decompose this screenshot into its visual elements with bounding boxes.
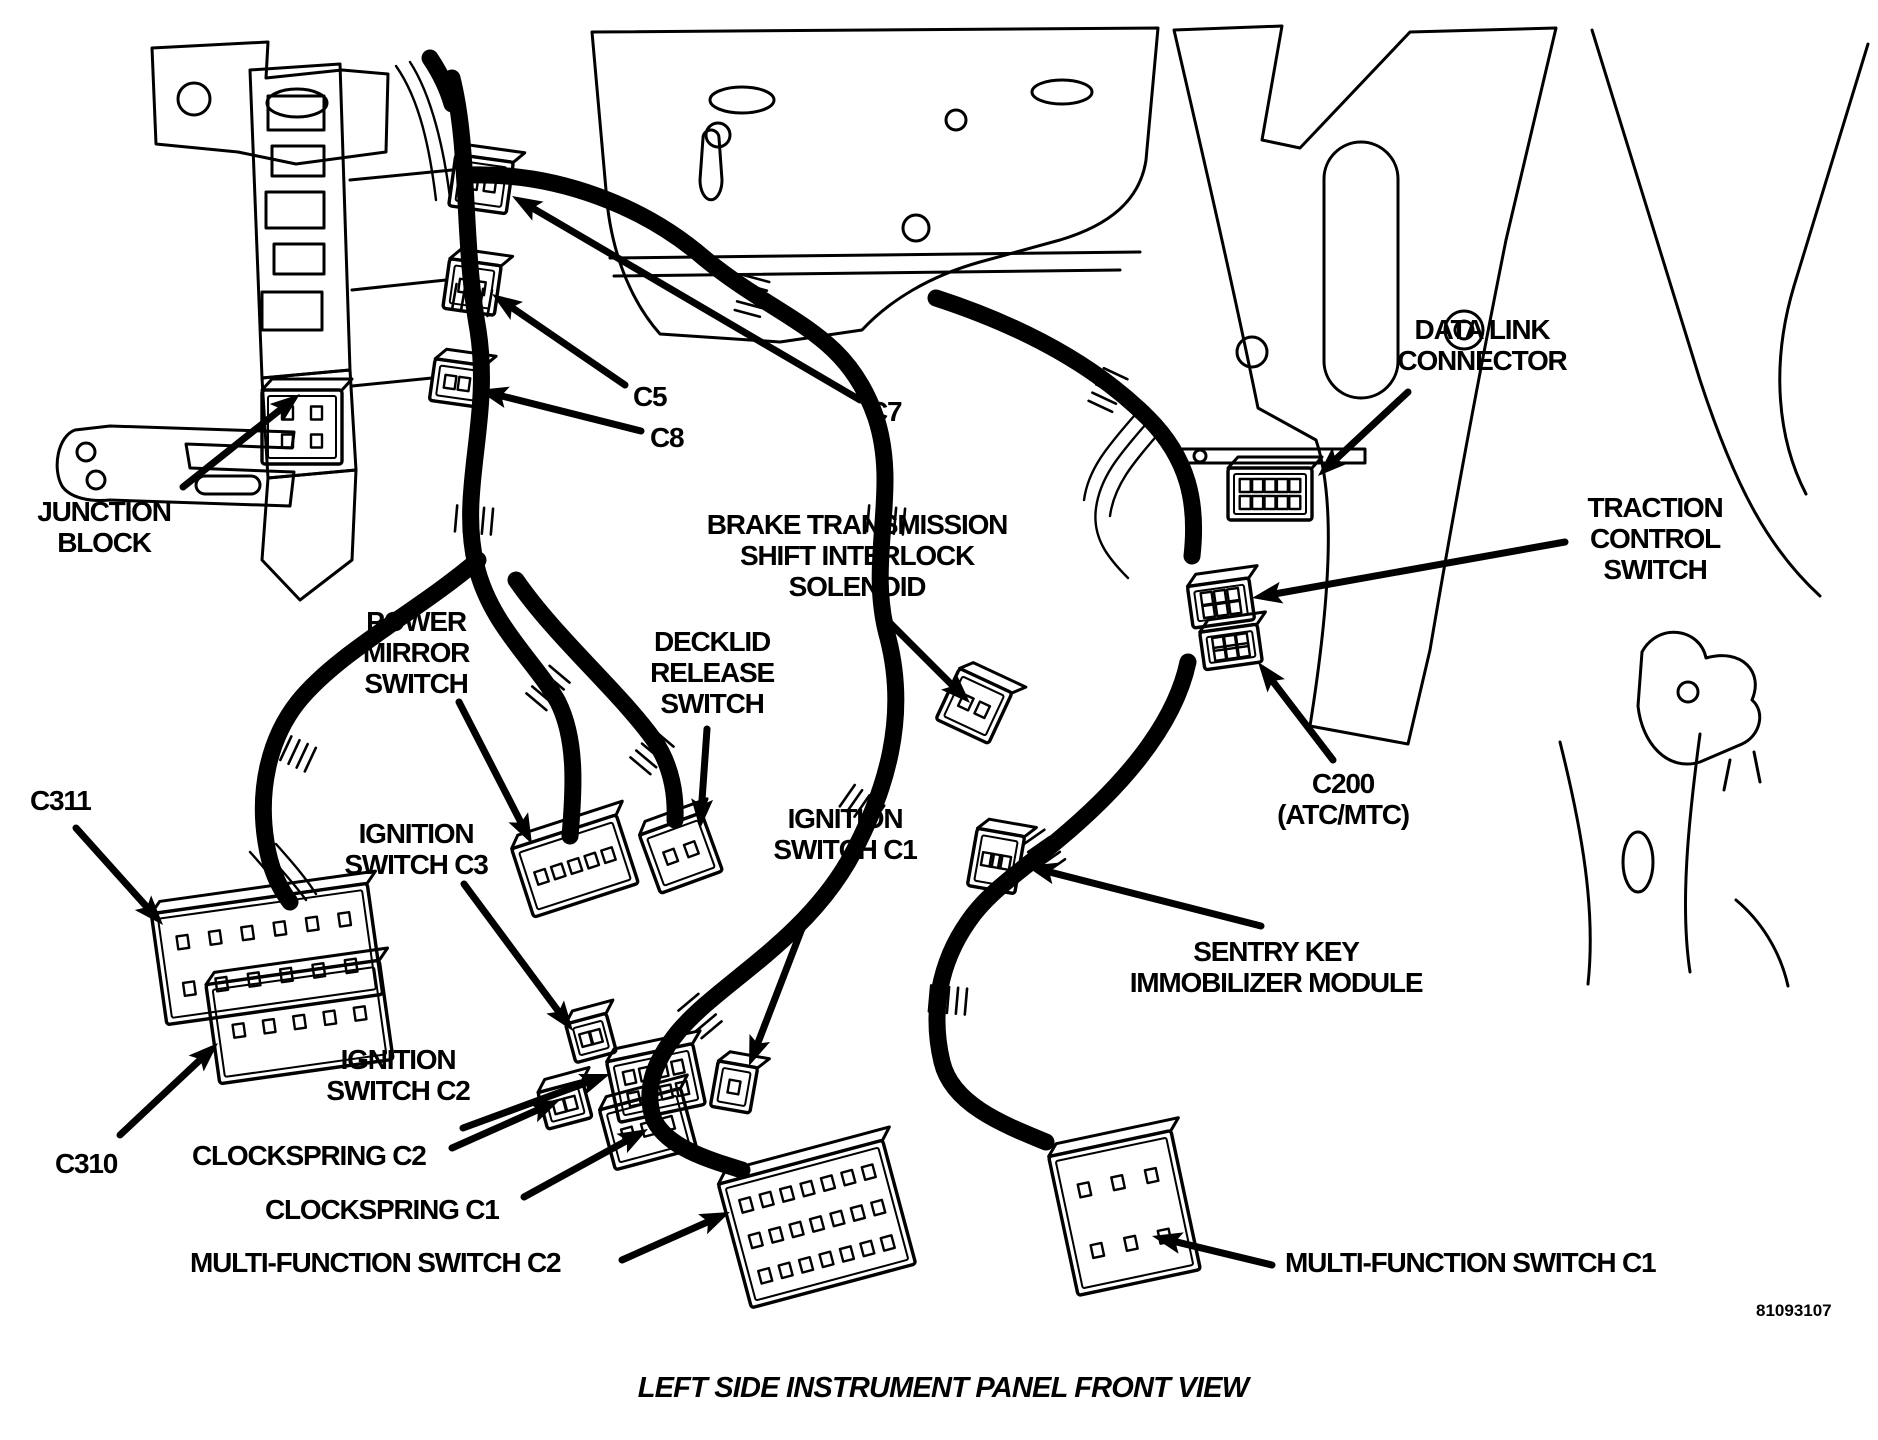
c5-arrow: [492, 294, 625, 385]
label-junction-block: JUNCTION BLOCK: [37, 496, 171, 558]
label-traction-control-switch: TRACTION CONTROL SWITCH: [1587, 492, 1722, 585]
mfs-c1-arrow: [1152, 1232, 1272, 1265]
label-data-link-connector: DATA LINK CONNECTOR: [1397, 314, 1566, 376]
label-c7: C7: [868, 396, 901, 427]
label-ignition-switch-c2: IGNITION SWITCH C2: [326, 1044, 469, 1106]
label-c8: C8: [650, 422, 683, 453]
wiring-diagram-page: JUNCTION BLOCK C5 C8 C7 DATA LINK CONNEC…: [0, 0, 1878, 1440]
label-c5: C5: [633, 381, 666, 412]
figure-number: 81093107: [1756, 1301, 1832, 1320]
c311-connector: [150, 871, 393, 1025]
label-c200-atc-mtc: C200 (ATC/MTC): [1277, 768, 1409, 830]
label-c310: C310: [55, 1148, 117, 1179]
label-clockspring-c2: CLOCKSPRING C2: [192, 1140, 426, 1171]
label-sentry-key-immobilizer-module: SENTRY KEY IMMOBILIZER MODULE: [1130, 936, 1423, 998]
btsi-connector: [936, 658, 1026, 747]
multi-function-c2-connector: [715, 1127, 925, 1308]
c7-arrow: [512, 196, 860, 400]
mfs-c2-arrow: [622, 1212, 730, 1260]
data-link-connector: [1228, 457, 1322, 520]
label-ignition-switch-c3: IGNITION SWITCH C3: [344, 818, 487, 880]
c200-arrow: [1258, 662, 1333, 760]
clockspring-c1-arrow: [524, 1129, 648, 1197]
traction-arrow: [1252, 542, 1565, 604]
ignition-c3-connector: [563, 1000, 626, 1063]
c311-arrow: [76, 828, 163, 925]
label-ignition-switch-c1: IGNITION SWITCH C1: [773, 803, 916, 865]
label-decklid-release-switch: DECKLID RELEASE SWITCH: [650, 626, 774, 719]
c8-arrow: [478, 387, 641, 431]
connectors-layer: [150, 143, 1322, 1307]
label-multi-function-switch-c1: MULTI-FUNCTION SWITCH C1: [1285, 1247, 1655, 1278]
c310-arrow: [120, 1043, 218, 1135]
figure-caption: LEFT SIDE INSTRUMENT PANEL FRONT VIEW: [638, 1372, 1249, 1404]
ignition-c3-arrow: [464, 884, 573, 1031]
multi-function-c1-connector: [1046, 1118, 1210, 1296]
label-power-mirror-switch: POWER MIRROR SWITCH: [363, 606, 469, 699]
label-c311: C311: [30, 785, 91, 816]
sentry-arrow: [1026, 863, 1261, 926]
junction-block-connector: [262, 379, 352, 464]
decklid-connector: [636, 799, 732, 894]
label-clockspring-c1: CLOCKSPRING C1: [265, 1194, 499, 1225]
ignition-c1-connector: [710, 1050, 769, 1115]
label-brake-transmission-shift-interlock-solenoid: BRAKE TRANSMISSION SHIFT INTERLOCK SOLEN…: [707, 509, 1007, 602]
label-multi-function-switch-c2: MULTI-FUNCTION SWITCH C2: [190, 1247, 560, 1278]
